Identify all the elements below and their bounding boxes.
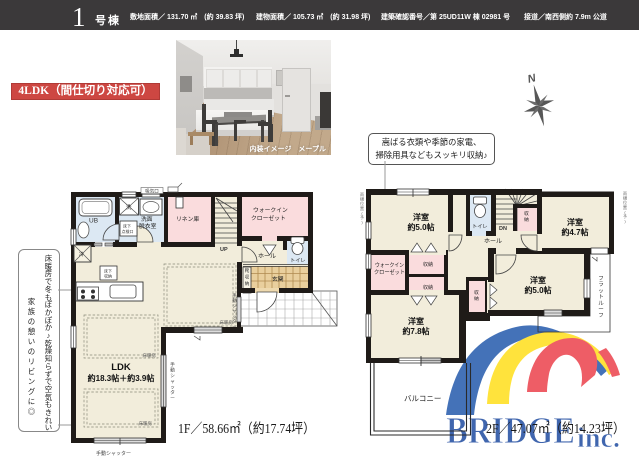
svg-text:床下: 床下 [123,223,131,229]
svg-text:2F／47.07㎡（約14.23坪）: 2F／47.07㎡（約14.23坪） [486,421,625,436]
svg-text:洋室: 洋室 [413,212,429,222]
svg-text:UB: UB [89,218,98,225]
svg-text:点検口: 点検口 [122,228,134,234]
svg-text:ウォークイン: ウォークイン [375,261,404,269]
svg-text:1F／58.66㎡（約17.74坪）: 1F／58.66㎡（約17.74坪） [178,421,315,436]
svg-text:手動シャッター: 手動シャッター [170,361,175,402]
svg-text:UP: UP [220,247,228,253]
svg-text:床暖房: 床暖房 [143,352,157,359]
svg-text:収: 収 [524,210,529,217]
svg-text:手動シャッター: 手動シャッター [96,450,131,457]
svg-text:冷: 冷 [79,251,84,258]
svg-text:洋室: 洋室 [408,316,424,326]
svg-text:床暖房: 床暖房 [139,420,153,427]
svg-text:DN: DN [499,226,507,232]
svg-text:約5.0帖: 約5.0帖 [407,222,434,232]
svg-text:雨樋位置(予): 雨樋位置(予) [360,192,364,225]
svg-text:約7.8帖: 約7.8帖 [402,326,429,336]
svg-text:ウォークイン: ウォークイン [253,206,288,214]
svg-text:洗: 洗 [126,203,132,211]
svg-text:リネン庫: リネン庫 [176,215,199,223]
svg-text:洋室: 洋室 [567,217,583,227]
svg-text:約5.0帖: 約5.0帖 [524,285,551,295]
svg-text:納: 納 [524,216,529,223]
svg-text:脱衣室: 脱衣室 [139,222,157,230]
svg-text:約4.7帖: 約4.7帖 [561,227,588,237]
svg-text:雨樋位置(予): 雨樋位置(予) [623,191,627,224]
svg-text:ホール: ホール [258,253,276,260]
svg-text:収: 収 [474,289,479,296]
svg-text:約18.3帖＋約3.9帖: 約18.3帖＋約3.9帖 [88,373,155,383]
svg-text:クローゼット: クローゼット [374,268,405,276]
svg-text:納: 納 [474,295,479,302]
svg-text:手動シャッター: 手動シャッター [232,292,237,329]
svg-text:収納: 収納 [104,273,112,279]
svg-text:ホール: ホール [484,238,502,245]
svg-text:N: N [526,72,538,86]
svg-text:バルコニー: バルコニー [404,394,441,403]
svg-text:洋室: 洋室 [530,275,546,285]
svg-text:フラットルーフ: フラットルーフ [598,275,604,319]
svg-text:クローゼット: クローゼット [251,214,286,222]
svg-text:玄関: 玄関 [272,275,284,283]
svg-text:トイレ: トイレ [290,258,306,264]
svg-text:LDK: LDK [111,362,131,373]
svg-text:洗面: 洗面 [141,215,153,223]
svg-text:トイレ: トイレ [472,224,488,230]
svg-text:収納: 収納 [423,261,433,268]
svg-text:靴収納: 靴収納 [245,267,250,287]
svg-text:収納: 収納 [423,284,433,291]
svg-text:吸気口: 吸気口 [145,188,159,195]
